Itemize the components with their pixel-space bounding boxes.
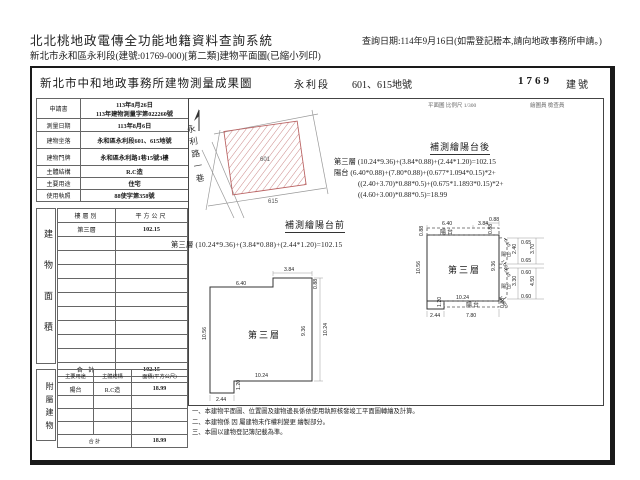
balcony-label: 陽台	[440, 228, 454, 236]
empty-cell	[58, 265, 116, 279]
floor-col-header: 平方公尺	[116, 209, 188, 223]
dim-label: 2.44	[216, 397, 226, 403]
dim-label: 10.56	[416, 261, 422, 274]
info-label: 主要用途	[37, 178, 81, 190]
info-value: 住宅	[81, 178, 189, 190]
annex-total-label: 合 計	[58, 435, 132, 448]
empty-cell	[116, 265, 188, 279]
info-value: 88使字第358號	[81, 190, 189, 202]
empty-cell	[58, 237, 116, 251]
dim-label: 3.30	[512, 276, 518, 286]
after-formulas: 第三層 (10.24*9.36)+(3.84*0.88)+(2.44*1.20)…	[334, 156, 504, 200]
empty-cell	[132, 422, 188, 435]
before-floor-plan: 6.40 3.84 0.88 10.56 第三層 9.36 10.24 10.2…	[200, 264, 352, 404]
dim-label: 0.88	[488, 224, 494, 234]
note-line: 二、本建物係 因 屬建物未作權利變更 繪製部分。	[192, 418, 419, 429]
empty-cell	[132, 409, 188, 422]
dim-label: 3.70	[530, 244, 536, 254]
dim-label: 0.15	[503, 268, 512, 278]
dim-label: 0.60	[521, 270, 531, 276]
note-line: 一、本建物平面圖、位置圖及建物邊長係依使用執照核發竣工平面圖轉繪及計算。	[192, 407, 419, 418]
room-label: 第三層	[248, 329, 281, 340]
balcony-label: 陽台	[501, 250, 511, 258]
info-value: R.C造	[81, 166, 189, 178]
info-value: 113年8月26日 113年建物測量字第022260號	[81, 99, 189, 119]
empty-cell	[116, 279, 188, 293]
info-label: 測量日期	[37, 119, 81, 132]
empty-cell	[58, 335, 116, 349]
dim-label: 0.88	[489, 217, 499, 223]
dim-label: 6.40	[236, 281, 246, 287]
empty-cell	[132, 396, 188, 409]
floor-row-value: 102.15	[116, 223, 188, 237]
empty-cell	[58, 409, 94, 422]
annex-row-area: 18.99	[132, 383, 188, 396]
dim-label: 2.44	[430, 313, 440, 319]
empty-cell	[58, 422, 94, 435]
after-formula-line: ((2.40+3.70)*0.88*0.5)+(0.675*1.1893*0.1…	[334, 178, 504, 189]
dim-label: 9.36	[491, 261, 497, 271]
room-label: 第三層	[448, 264, 481, 275]
dim-label: 0.65	[521, 258, 531, 264]
annex-total-value: 18.99	[132, 435, 188, 448]
dim-label: 6.40	[442, 221, 452, 227]
after-section-title: 補測繪陽台後	[430, 140, 490, 155]
empty-cell	[58, 251, 116, 265]
before-formula: 第三層 (10.24*9.36)+(3.84*0.88)+(2.44*1.20)…	[171, 240, 342, 250]
info-label: 申請書	[37, 99, 81, 119]
info-table: 申請書 113年8月26日 113年建物測量字第022260號 測量日期113年…	[36, 98, 189, 202]
empty-cell	[116, 335, 188, 349]
dim-label: 9.36	[301, 326, 307, 336]
floor-table-vertical-label: 建物面積	[36, 208, 56, 364]
empty-cell	[58, 279, 116, 293]
dim-label: 0.88	[419, 226, 425, 236]
info-value: 永和區永利段601、615地號	[81, 132, 189, 149]
empty-cell	[116, 251, 188, 265]
info-label: 主體結構	[37, 166, 81, 178]
floor-row-label: 第三層	[58, 223, 116, 237]
annex-table: 主要用途 主體結構 面積(平方公尺) 陽台 R.C造 18.99 合 計 18.…	[57, 369, 188, 448]
empty-cell	[58, 307, 116, 321]
empty-cell	[58, 321, 116, 335]
annex-col-header: 主要用途	[58, 370, 94, 383]
stamp-note: 繪圖員 檢查員	[530, 101, 564, 109]
dim-label: 2.40	[512, 244, 518, 254]
info-value: 永和區永利路1巷15號3樓	[81, 149, 189, 166]
parcel-numbers: 601、615地號	[352, 76, 412, 91]
floor-col-header: 樓層別	[58, 209, 116, 223]
building-number: 1769	[518, 75, 552, 87]
after-formula-line: ((4.60+3.00)*0.88*0.5)=18.99	[334, 189, 504, 200]
dim-label: 1.20	[437, 297, 443, 307]
before-section-title: 補測繪陽台前	[285, 218, 345, 233]
empty-cell	[94, 422, 132, 435]
after-formula-line: 第三層 (10.24*9.36)+(3.84*0.88)+(2.44*1.20)…	[334, 156, 504, 167]
query-date: 查詢日期:114年9月16日(如需登記謄本,請向地政事務所申請。)	[362, 34, 602, 47]
after-formula-line: 陽台 (6.40*0.88)+(7.80*0.88)+(0.677*1.094*…	[334, 167, 504, 178]
info-label: 建物門牌	[37, 149, 81, 166]
section-name: 永利段	[294, 76, 330, 91]
dim-label: 0.60	[521, 294, 531, 300]
empty-cell	[116, 293, 188, 307]
dim-label: 10.56	[202, 327, 208, 340]
empty-cell	[58, 396, 94, 409]
dim-label: 3.84	[478, 221, 488, 227]
balcony-label: 陽台	[501, 282, 511, 290]
app-subtitle: 新北市永和區永利段(建號:01769-000)[第二類]建物平面圖(已縮小列印)	[30, 48, 321, 62]
footnotes: 一、本建物平面圖、位置圖及建物邊長係依使用執照核發竣工平面圖轉繪及計算。 二、本…	[192, 407, 419, 439]
dim-label: 10.24	[456, 295, 469, 301]
empty-cell	[94, 396, 132, 409]
annex-col-header: 主體結構	[94, 370, 132, 383]
empty-cell	[116, 307, 188, 321]
dim-label: 1.20	[236, 380, 242, 390]
lot-number: 601	[260, 157, 271, 163]
annex-row-use: 陽台	[58, 383, 94, 396]
document-frame: 新北市中和地政事務所建物測量成果圖 永利段 601、615地號 1769 建號 …	[30, 66, 615, 465]
after-floor-plan: 0.88 6.40 3.84 0.88 陽台 0.88 10.56 第三層 9.…	[382, 216, 598, 378]
office-title: 新北市中和地政事務所建物測量成果圖	[40, 75, 253, 91]
dim-label: 0.88	[500, 298, 506, 308]
app-title: 北北桃地政電傳全功能地籍資料查詢系統	[30, 30, 273, 49]
empty-cell	[116, 349, 188, 363]
dim-label: 0.15	[503, 238, 512, 248]
empty-cell	[94, 409, 132, 422]
site-plan: 601 615	[200, 106, 332, 220]
dim-label: 10.24	[323, 323, 329, 336]
annex-row-structure: R.C造	[94, 383, 132, 396]
annex-col-header: 面積(平方公尺)	[132, 370, 188, 383]
dim-label: 0.88	[313, 279, 319, 289]
info-label: 使用執照	[37, 190, 81, 202]
info-value: 113年8月6日	[81, 119, 189, 132]
floor-area-table: 樓層別 平方公尺 第三層 102.15 合 計 102.15	[57, 208, 188, 377]
lot-number: 615	[268, 199, 279, 205]
dim-label: 3.84	[284, 267, 294, 273]
dim-label: 7.80	[466, 313, 476, 319]
dim-label: 4.50	[530, 276, 536, 286]
dim-label: 10.24	[255, 373, 268, 379]
scale-note: 平面圖 比例尺 1/300	[428, 101, 476, 109]
info-value-line: 113年8月26日	[81, 100, 188, 109]
building-number-label: 建號	[566, 76, 590, 91]
empty-cell	[58, 293, 116, 307]
annex-table-vertical-label: 附屬建物	[36, 369, 56, 441]
note-line: 三、本圖以建物登記簿記載為準。	[192, 428, 419, 439]
info-label: 建物坐落	[37, 132, 81, 149]
empty-cell	[116, 321, 188, 335]
empty-cell	[58, 349, 116, 363]
balcony-label: 陽台	[466, 301, 480, 309]
info-value-line: 113年建物測量字第022260號	[81, 109, 188, 118]
